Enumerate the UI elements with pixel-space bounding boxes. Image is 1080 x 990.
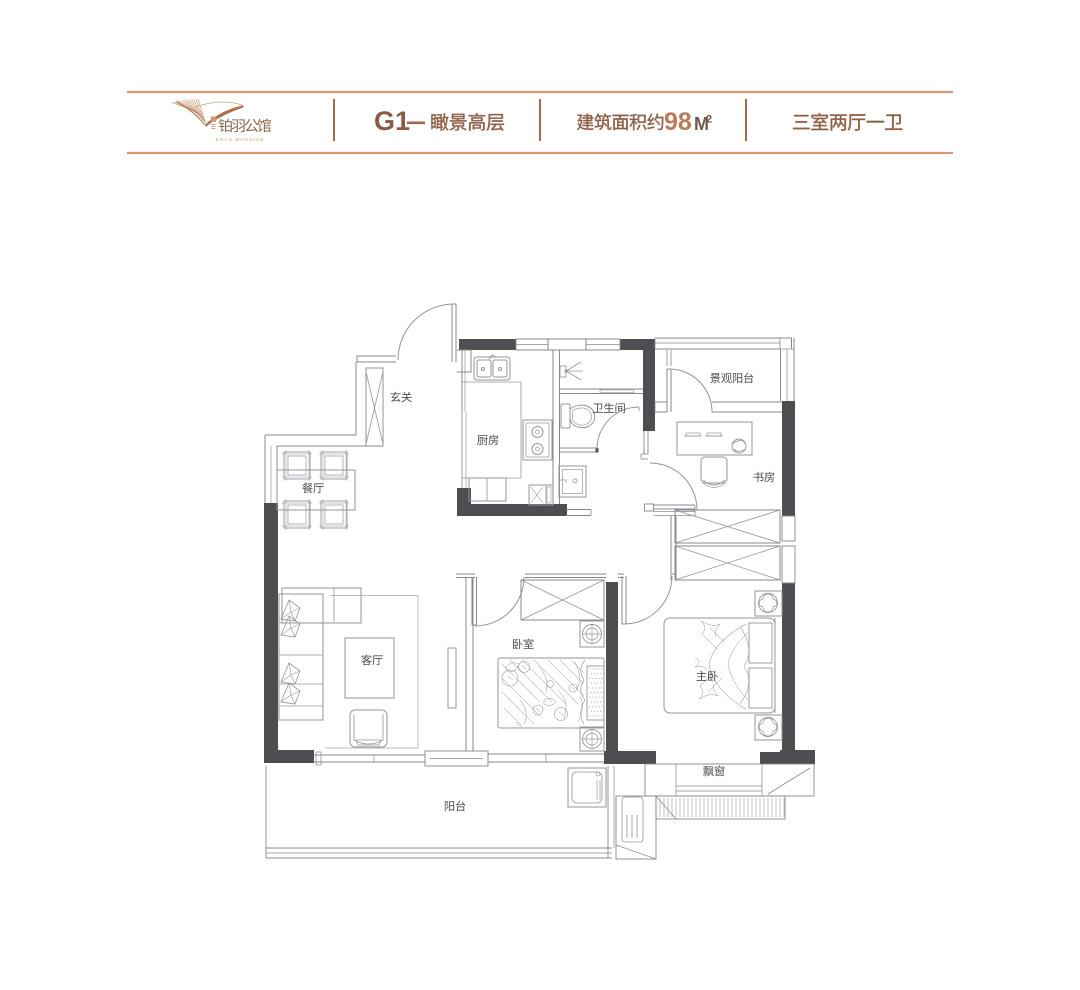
svg-text:98: 98 xyxy=(664,108,692,136)
svg-text:G1: G1 xyxy=(374,106,410,136)
svg-text:2: 2 xyxy=(706,114,712,126)
svg-text:BOYU MANSION: BOYU MANSION xyxy=(216,137,265,142)
